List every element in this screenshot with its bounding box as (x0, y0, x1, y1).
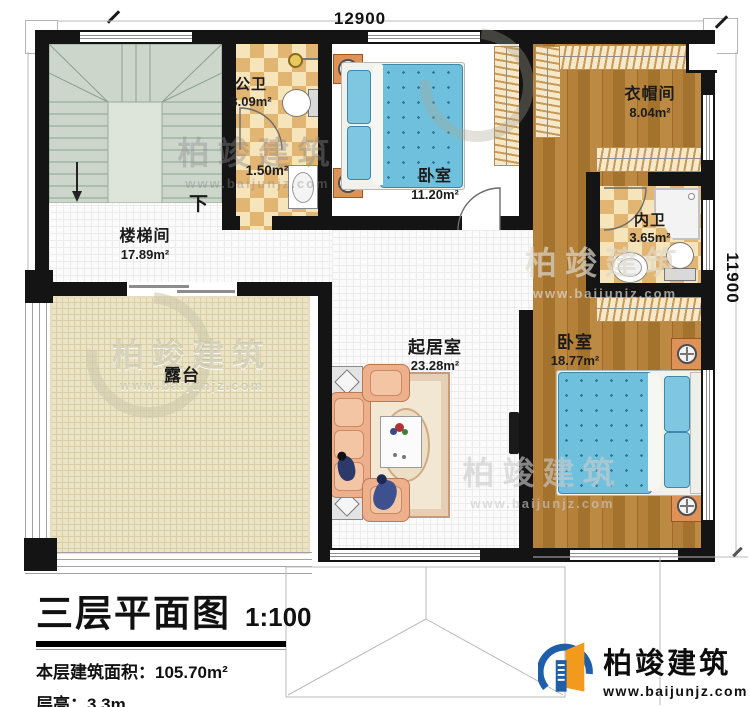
title-rule-thin (36, 649, 286, 650)
corner-window-notch (686, 44, 717, 73)
wall (586, 172, 600, 186)
bed-sheet-fold (648, 373, 662, 491)
wardrobe-rack (535, 46, 561, 138)
wall (222, 44, 236, 216)
terrace-column (24, 538, 57, 571)
dimension-top: 12900 (320, 9, 400, 29)
dimension-right: 11900 (722, 238, 742, 318)
brand-logo-icon (538, 638, 595, 700)
window (80, 30, 192, 44)
wall (586, 283, 701, 297)
wall (519, 310, 533, 548)
sink-icon (288, 165, 318, 209)
dimension-tick (107, 10, 120, 23)
title-rule (36, 641, 286, 647)
floor-plan-sheet: 柏竣建筑www.baijunjz.com 柏竣建筑www.baijunjz.co… (0, 0, 750, 707)
armchair (362, 364, 410, 402)
wall (35, 30, 49, 296)
bed-sheet-fold (371, 65, 383, 185)
toilet-icon (282, 88, 318, 116)
tv (509, 412, 519, 454)
wardrobe-rack (596, 297, 703, 322)
wall (222, 216, 240, 230)
window (570, 548, 678, 562)
terrace-parapet-bottom (25, 552, 312, 574)
pillow (347, 70, 371, 124)
lamp-icon (677, 344, 697, 364)
toilet-icon (664, 242, 696, 281)
faucet-icon (288, 53, 318, 65)
title-block: 三层平面图 1:100 本层建筑面积：105.70m² 层高：3.3m (36, 583, 336, 707)
brand-logo: 柏竣建筑 www.baijunjz.com (538, 634, 748, 704)
floor-height-line: 层高：3.3m (36, 690, 336, 707)
wall (648, 172, 701, 186)
wardrobe-rack (596, 147, 703, 172)
pillow (347, 126, 371, 180)
nightstand (671, 338, 703, 370)
wall (318, 282, 332, 562)
lamp-icon (677, 496, 697, 516)
bed-duvet (558, 372, 652, 494)
wall (272, 216, 462, 230)
window (701, 200, 715, 270)
dimension-tick (732, 547, 743, 558)
window (330, 548, 480, 562)
wardrobe-rack (559, 45, 689, 70)
page-title: 三层平面图 (36, 583, 231, 637)
wall (500, 216, 533, 230)
wall (318, 44, 332, 216)
sink-icon (612, 252, 648, 283)
brand-name: 柏竣建筑 (603, 640, 748, 682)
staircase-drawing (49, 44, 222, 203)
pillow (664, 432, 690, 488)
window (701, 370, 715, 520)
brand-url: www.baijunjz.com (603, 683, 748, 699)
scale-label: 1:100 (245, 602, 312, 633)
terrace-parapet-left (25, 303, 49, 538)
pillow (664, 376, 690, 432)
coffee-table (380, 416, 422, 468)
wall (25, 270, 53, 303)
window (701, 95, 715, 160)
staircase (49, 44, 222, 203)
floor-area-line: 本层建筑面积：105.70m² (36, 658, 336, 683)
wall (586, 186, 600, 297)
